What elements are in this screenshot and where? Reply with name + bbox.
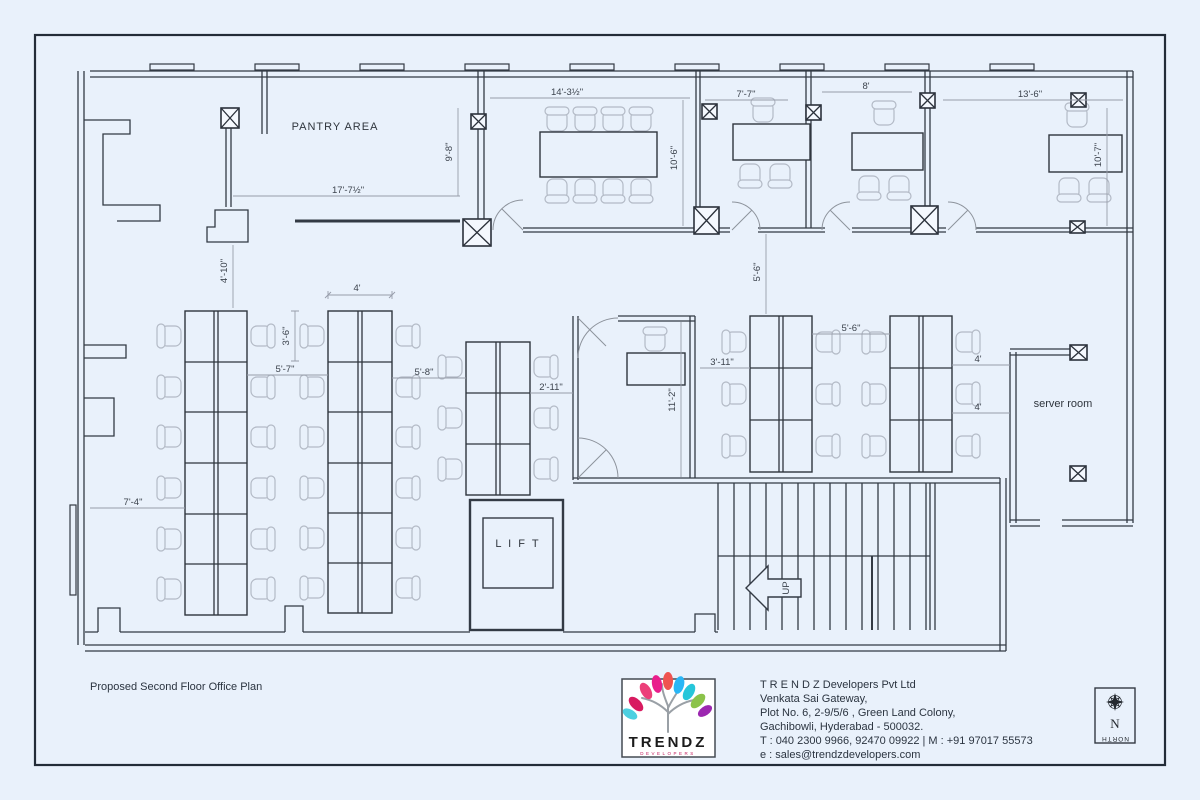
pantry-area-label: PANTRY AREA [292, 121, 379, 133]
cabin3-furniture [1049, 103, 1122, 202]
lift-shaft [470, 500, 563, 630]
mid-cabin-furniture [627, 327, 685, 385]
cabin3-desk [1049, 135, 1122, 172]
dim-cabin2-width: 8' [862, 81, 869, 92]
company-name: T R E N D Z Developers Pvt Ltd [760, 679, 916, 691]
north-compass-icon [1106, 693, 1124, 711]
dim-left-clear: 7'-4" [124, 497, 143, 508]
dim-gap-ab: 5'-7" [276, 364, 295, 375]
up-arrow-icon [746, 566, 801, 610]
column-icon [471, 114, 486, 129]
company-email: e : sales@trendzdevelopers.com [760, 749, 920, 761]
dim-gap-c-corridor: 2'-11" [539, 382, 563, 393]
stairs-up-label: UP [781, 581, 792, 594]
workstation-cluster-e [862, 316, 980, 472]
cabin2-furniture [852, 101, 923, 200]
company-info: T R E N D Z Developers Pvt Ltd Venkata S… [760, 679, 1033, 761]
logo-tagline: DEVELOPERS [640, 751, 696, 756]
column-icon [1070, 345, 1087, 360]
workstation-cluster-b [300, 311, 420, 613]
north-letter: N [1110, 716, 1120, 731]
column-icon [702, 104, 717, 119]
dim-pantry-height: 9'-8" [444, 143, 455, 162]
dim-cabin1-width: 7'-7" [737, 89, 756, 100]
workstation-cluster-d [722, 316, 840, 472]
pantry-sink [207, 210, 248, 242]
north-indicator: N NORTH [1095, 688, 1135, 743]
floor-plan: UP [0, 0, 1200, 800]
page-title: Proposed Second Floor Office Plan [90, 681, 262, 693]
dim-pantry-vert: 4'-10" [219, 259, 230, 283]
dim-gap-top: 5'-6" [752, 263, 763, 282]
cabin2-desk [852, 133, 923, 170]
conference-room-furniture [540, 107, 657, 203]
company-address-2: Plot No. 6, 2-9/5/6 , Green Land Colony, [760, 707, 955, 719]
logo-name: TRENDZ [629, 734, 708, 751]
company-logo: TRENDZ DEVELOPERS [621, 672, 715, 757]
dim-server-gap1: 4' [974, 354, 981, 365]
conference-table [540, 132, 657, 177]
dim-pantry-width: 17'-7½" [332, 185, 364, 196]
mid-cabin-desk [627, 353, 685, 385]
column-icon [806, 105, 821, 120]
cabin1-desk [733, 124, 810, 160]
dim-server-gap2: 4' [974, 402, 981, 413]
workstation-cluster-a [157, 311, 275, 615]
company-address-3: Gachibowli, Hyderabad - 500032. [760, 721, 923, 733]
cabin1-furniture [733, 98, 810, 188]
dim-cabin3-height: 10'-7" [1093, 143, 1104, 167]
column-icon [1070, 466, 1086, 481]
column-icon [463, 219, 491, 246]
drawing-sheet: UP [0, 0, 1200, 800]
workstation-cluster-c [438, 342, 558, 495]
column-icon [911, 206, 938, 234]
dim-cluster-b-width: 4' [353, 283, 360, 294]
dim-gap-de: 5'-6" [842, 323, 861, 334]
dim-gap-bc: 5'-8" [415, 367, 434, 378]
dim-mid-cabin-height: 11'-2" [667, 388, 678, 412]
dim-cabin3-width: 13'-6" [1018, 89, 1042, 100]
staircase: UP [718, 483, 935, 630]
company-address-1: Venkata Sai Gateway, [760, 693, 867, 705]
dim-conference-height: 10'-6" [669, 146, 680, 170]
column-icon [221, 108, 239, 128]
server-room-label: server room [1034, 398, 1093, 410]
dim-conference-width: 14'-3½" [551, 87, 583, 98]
column-icon [1070, 221, 1085, 233]
column-icon [920, 93, 935, 108]
dim-seg-height: 3'-6" [281, 327, 292, 346]
server-room-walls [1010, 349, 1133, 526]
dim-gap-cabin-d: 3'-11" [710, 357, 734, 368]
column-icon [694, 207, 719, 234]
lift-label: L I F T [495, 538, 540, 550]
north-label: NORTH [1101, 735, 1129, 742]
company-phone: T : 040 2300 9966, 92470 09922 | M : +91… [760, 735, 1033, 747]
